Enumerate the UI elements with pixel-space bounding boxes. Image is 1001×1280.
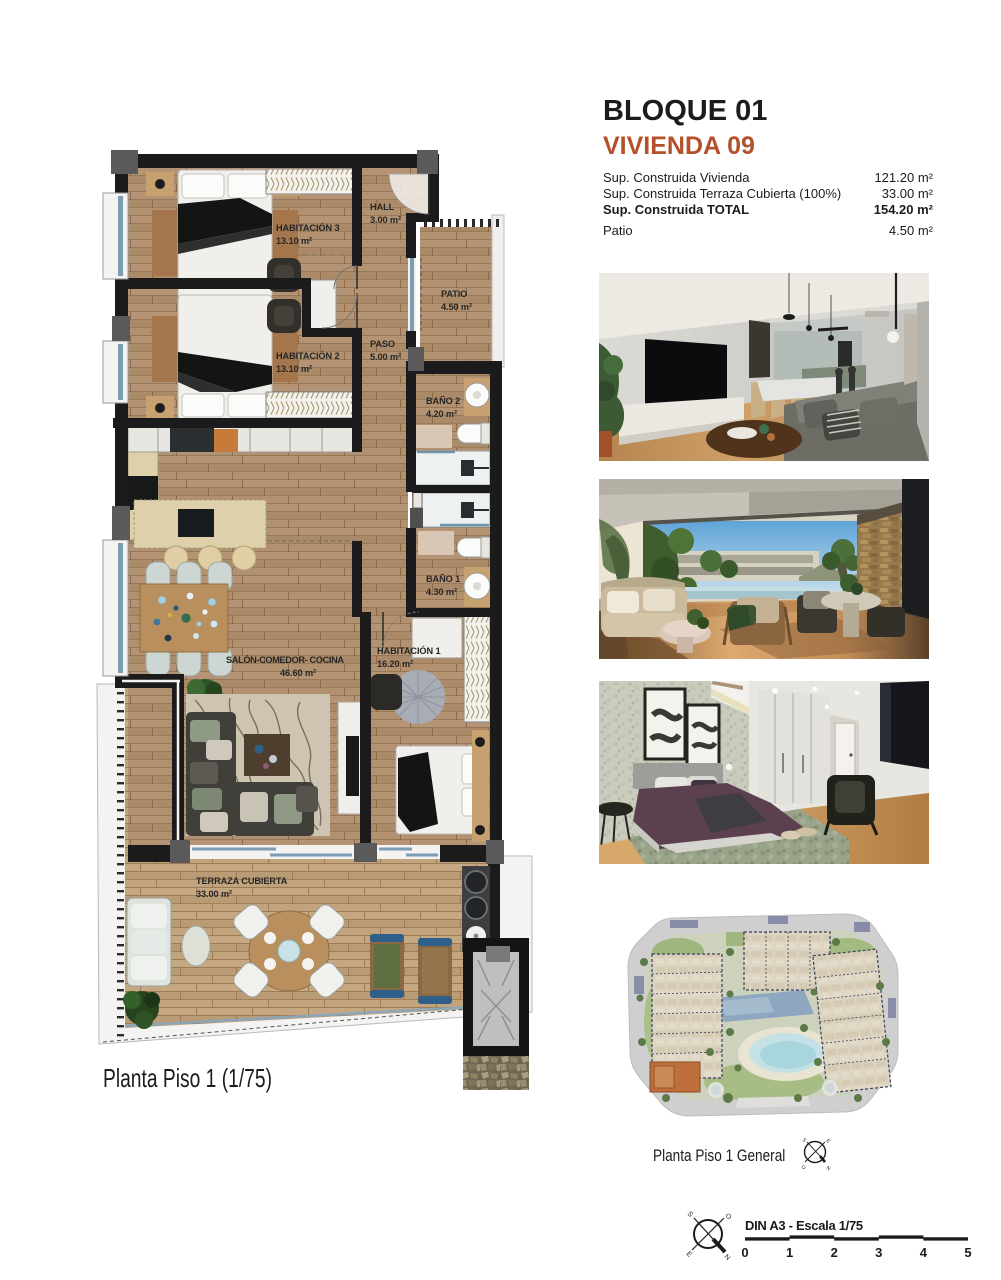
svg-text:16.20 m²: 16.20 m² (377, 659, 413, 669)
svg-text:33.00 m²: 33.00 m² (196, 889, 232, 899)
svg-text:DIN A3 - Escala 1/75: DIN A3 - Escala 1/75 (745, 1218, 863, 1233)
svg-text:N: N (825, 1165, 832, 1172)
svg-text:N: N (723, 1253, 732, 1262)
svg-text:4.20 m²: 4.20 m² (426, 409, 457, 419)
svg-text:E: E (685, 1250, 693, 1258)
svg-text:S: S (801, 1137, 808, 1144)
svg-text:O: O (800, 1164, 807, 1171)
svg-text:HABITACIÓN 2: HABITACIÓN 2 (276, 350, 339, 361)
svg-text:HABITACIÓN 3: HABITACIÓN 3 (276, 222, 339, 233)
svg-text:3.00 m²: 3.00 m² (370, 215, 401, 225)
svg-text:5: 5 (964, 1245, 971, 1260)
svg-text:TERRAZA CUBIERTA: TERRAZA CUBIERTA (196, 876, 288, 886)
svg-text:13.10 m²: 13.10 m² (276, 236, 312, 246)
svg-text:BAÑO 2: BAÑO 2 (426, 396, 460, 406)
svg-text:S: S (686, 1210, 694, 1218)
svg-text:13.10 m²: 13.10 m² (276, 364, 312, 374)
svg-text:46.60 m²: 46.60 m² (280, 668, 316, 678)
svg-text:PASO: PASO (370, 339, 395, 349)
svg-text:0: 0 (741, 1245, 748, 1260)
svg-text:5.00 m²: 5.00 m² (370, 352, 401, 362)
svg-text:4: 4 (920, 1245, 928, 1260)
svg-text:E: E (825, 1138, 832, 1145)
svg-text:4.50 m²: 4.50 m² (441, 302, 472, 312)
svg-text:SALÓN-COMEDOR- COCINA: SALÓN-COMEDOR- COCINA (226, 654, 344, 665)
svg-text:O: O (724, 1212, 733, 1221)
svg-text:3: 3 (875, 1245, 882, 1260)
svg-text:2: 2 (831, 1245, 838, 1260)
svg-text:HABITACIÓN 1: HABITACIÓN 1 (377, 645, 440, 656)
svg-text:HALL: HALL (370, 202, 395, 212)
svg-text:4.30 m²: 4.30 m² (426, 587, 457, 597)
svg-text:BAÑO 1: BAÑO 1 (426, 574, 460, 584)
svg-text:1: 1 (786, 1245, 793, 1260)
svg-text:PATIO: PATIO (441, 289, 467, 299)
